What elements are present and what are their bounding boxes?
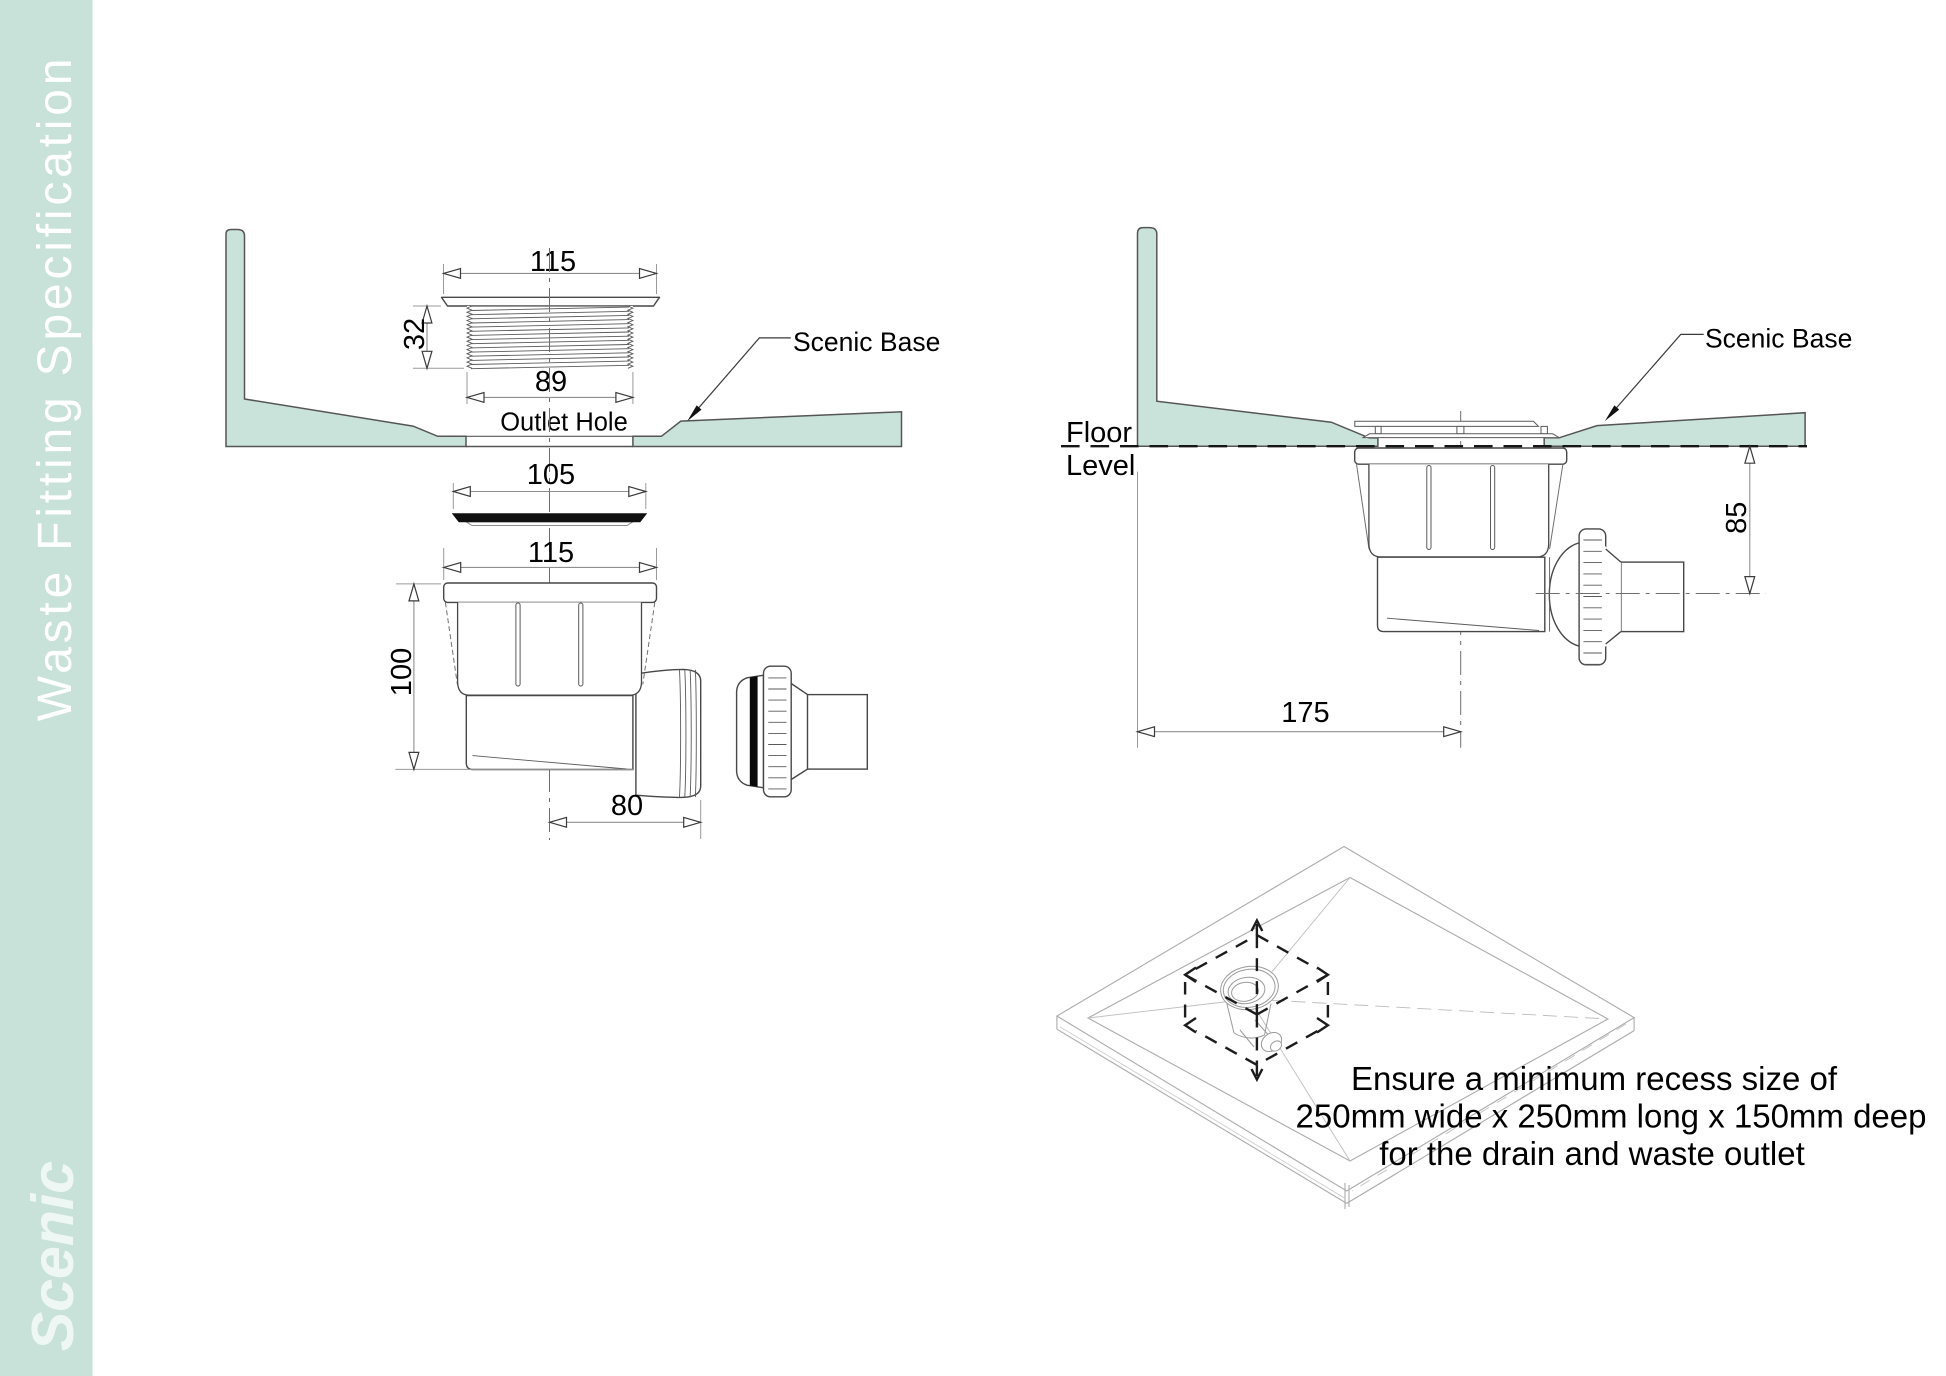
svg-text:for the drain and waste outlet: for the drain and waste outlet — [1379, 1135, 1805, 1172]
svg-text:Waste Fitting Specification: Waste Fitting Specification — [29, 55, 82, 721]
svg-text:Floor: Floor — [1066, 417, 1132, 449]
svg-text:115: 115 — [528, 537, 574, 569]
svg-text:89: 89 — [535, 366, 567, 398]
svg-text:Scenic: Scenic — [20, 1161, 86, 1351]
svg-text:100: 100 — [386, 648, 418, 696]
svg-text:250mm wide x 250mm long x 150m: 250mm wide x 250mm long x 150mm deep — [1296, 1098, 1927, 1135]
svg-text:175: 175 — [1281, 697, 1329, 729]
svg-text:Level: Level — [1066, 450, 1135, 482]
svg-text:Scenic Base: Scenic Base — [793, 327, 940, 357]
svg-text:Scenic Base: Scenic Base — [1705, 324, 1852, 354]
svg-text:32: 32 — [399, 318, 431, 350]
svg-text:105: 105 — [527, 459, 575, 491]
svg-text:85: 85 — [1721, 502, 1753, 534]
svg-text:80: 80 — [611, 790, 643, 822]
svg-text:Outlet Hole: Outlet Hole — [500, 409, 628, 437]
svg-text:Ensure a minimum recess size o: Ensure a minimum recess size of — [1351, 1060, 1838, 1097]
svg-text:115: 115 — [530, 246, 576, 278]
